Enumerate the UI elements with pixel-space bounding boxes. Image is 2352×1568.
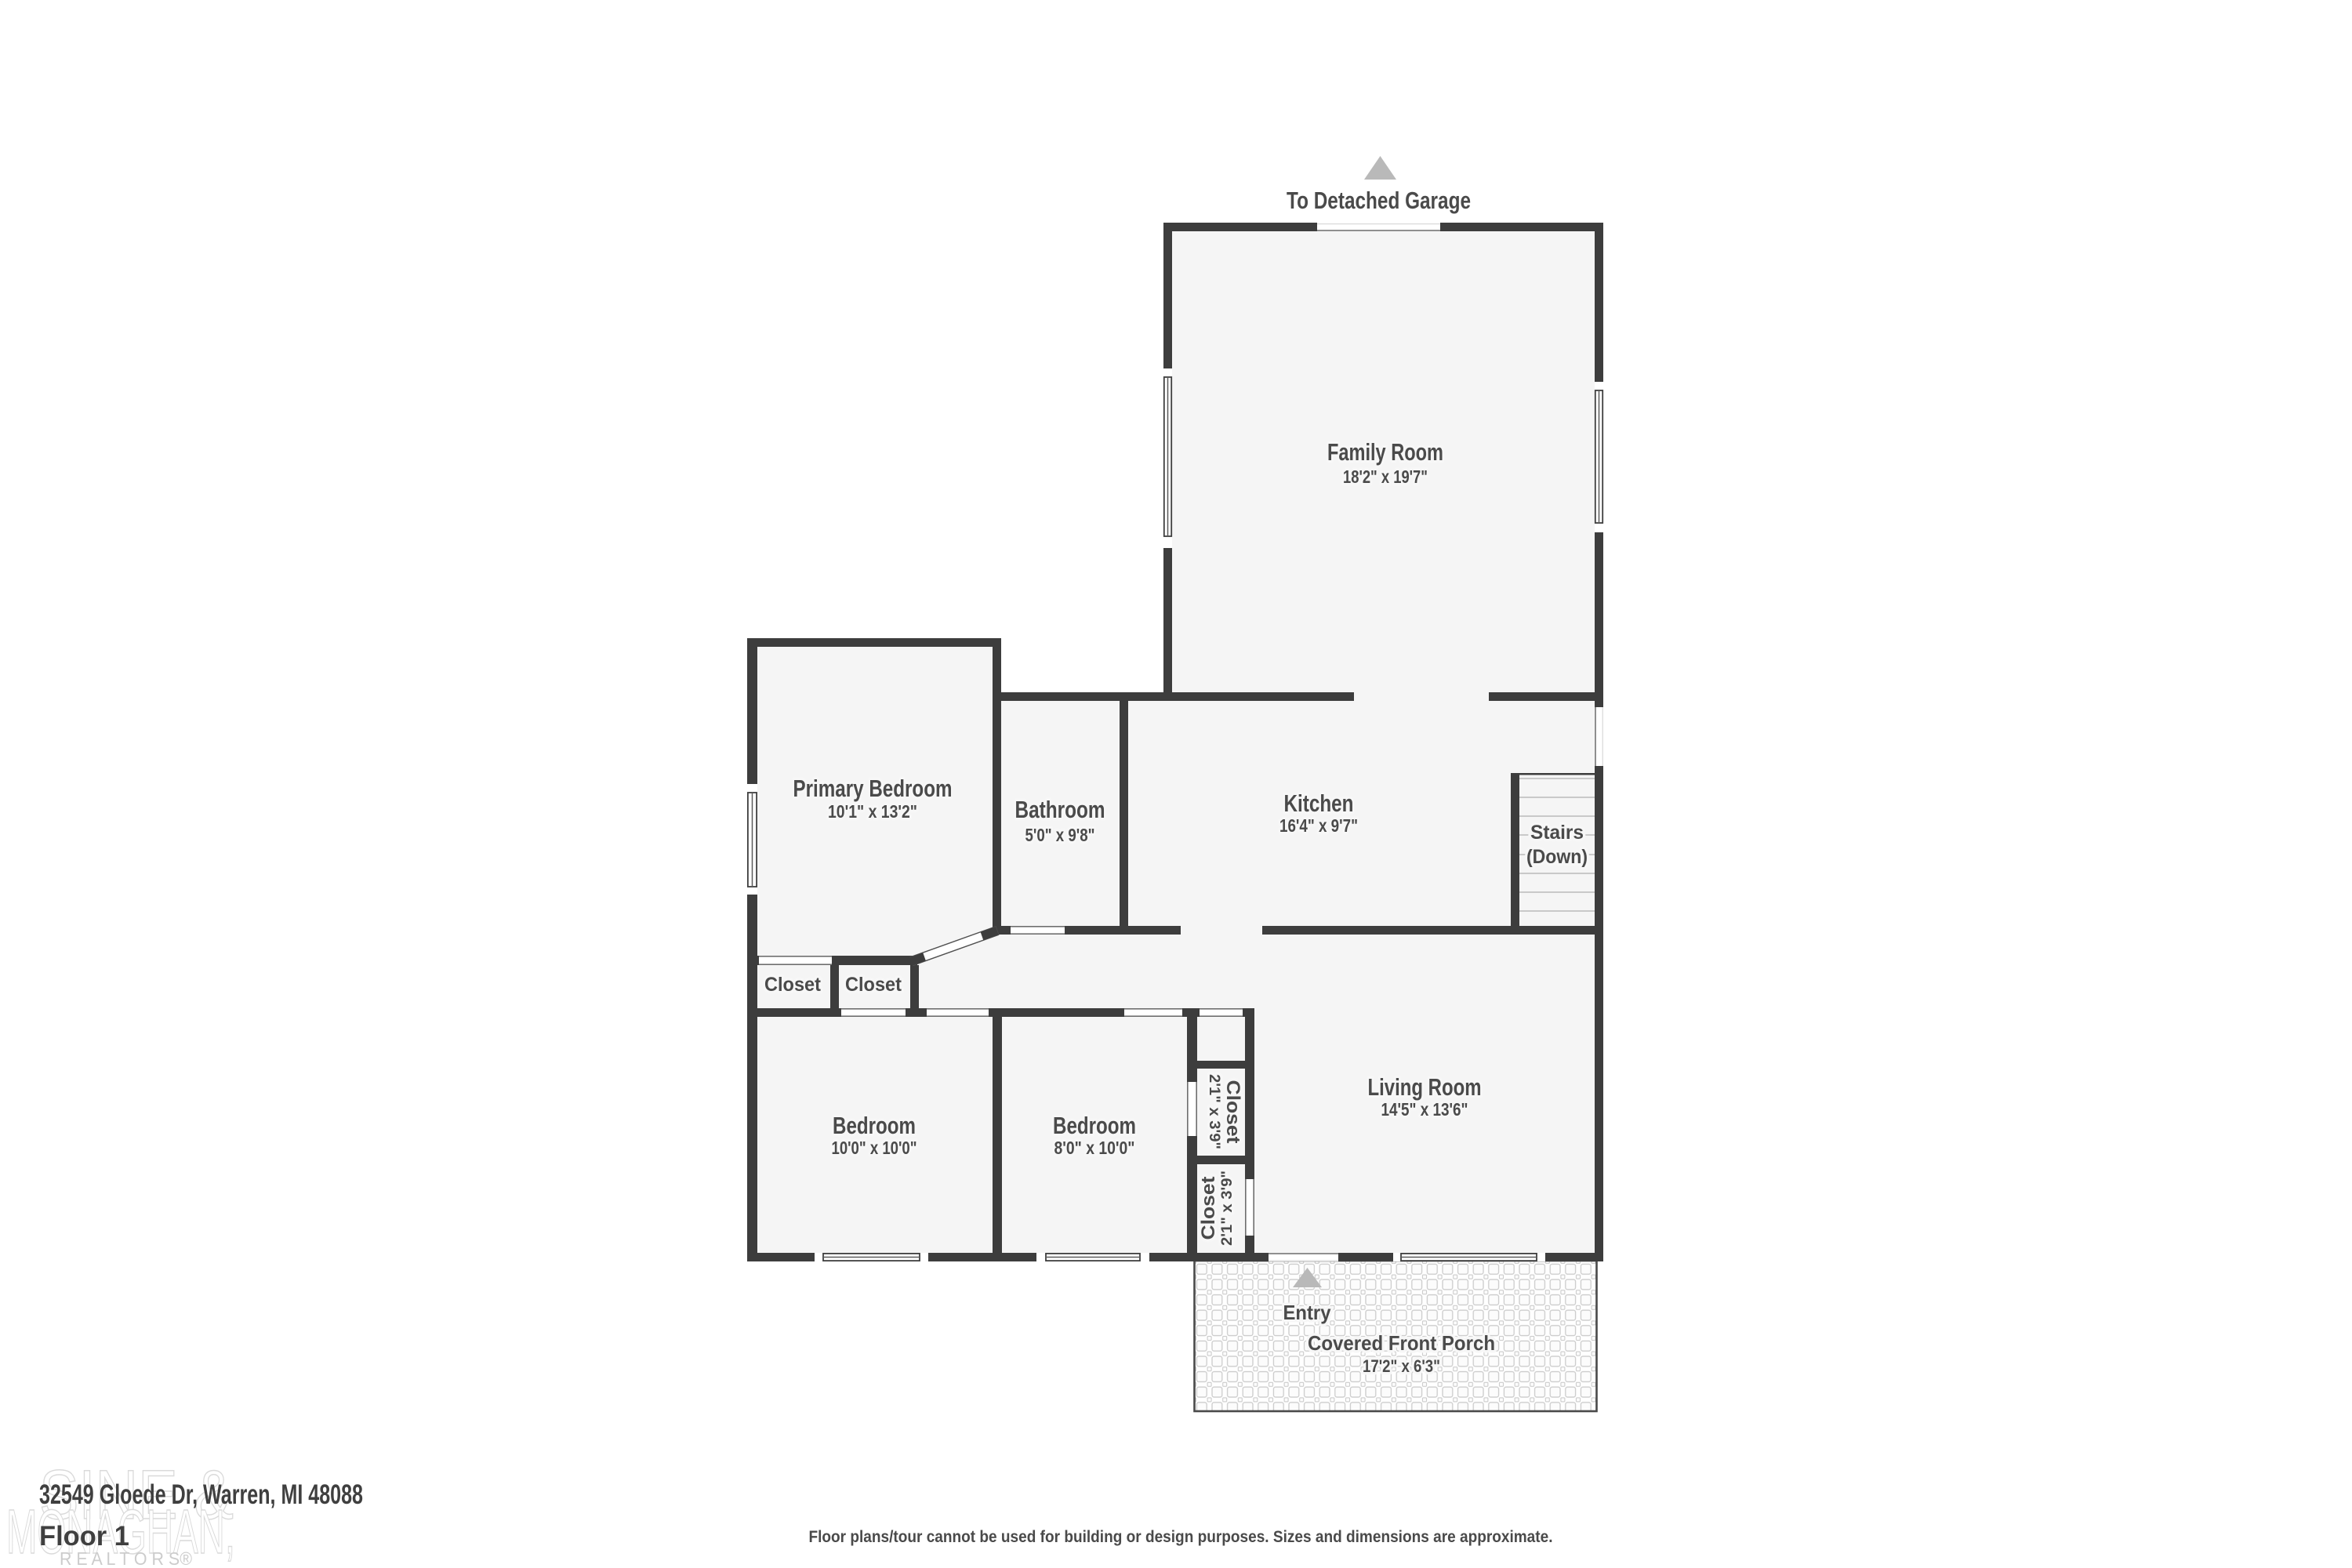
svg-text:Closet: Closet bbox=[764, 974, 822, 996]
svg-text:Floor plans/tour cannot be use: Floor plans/tour cannot be used for buil… bbox=[809, 1528, 1553, 1546]
svg-text:32549 Gloede Dr, Warren, MI 48: 32549 Gloede Dr, Warren, MI 48088 bbox=[39, 1479, 363, 1510]
svg-text:Primary Bedroom: Primary Bedroom bbox=[793, 775, 953, 802]
svg-text:Closet: Closet bbox=[1198, 1177, 1219, 1240]
svg-text:Bathroom: Bathroom bbox=[1015, 796, 1105, 823]
svg-text:Closet: Closet bbox=[1222, 1080, 1243, 1144]
svg-text:Closet: Closet bbox=[845, 974, 902, 996]
svg-text:10'1" x 13'2": 10'1" x 13'2" bbox=[828, 801, 917, 822]
svg-text:8'0" x 10'0": 8'0" x 10'0" bbox=[1054, 1138, 1135, 1158]
svg-text:14'5" x 13'6": 14'5" x 13'6" bbox=[1381, 1099, 1468, 1120]
svg-text:16'4" x 9'7": 16'4" x 9'7" bbox=[1279, 815, 1358, 836]
svg-text:Kitchen: Kitchen bbox=[1284, 789, 1354, 817]
svg-text:2'1" x 3'9": 2'1" x 3'9" bbox=[1219, 1171, 1236, 1246]
svg-text:Living Room: Living Room bbox=[1368, 1073, 1482, 1101]
svg-text:Family Room: Family Room bbox=[1327, 438, 1443, 466]
svg-text:Bedroom: Bedroom bbox=[833, 1112, 916, 1139]
svg-text:5'0" x 9'8": 5'0" x 9'8" bbox=[1025, 825, 1095, 845]
svg-text:18'2" x 19'7": 18'2" x 19'7" bbox=[1343, 466, 1428, 487]
svg-text:To Detached Garage: To Detached Garage bbox=[1287, 187, 1471, 214]
svg-text:10'0" x 10'0": 10'0" x 10'0" bbox=[832, 1138, 917, 1158]
svg-text:Bedroom: Bedroom bbox=[1053, 1112, 1136, 1139]
svg-text:17'2" x 6'3": 17'2" x 6'3" bbox=[1363, 1356, 1440, 1376]
svg-text:Floor 1: Floor 1 bbox=[39, 1521, 129, 1552]
svg-text:Stairs: Stairs bbox=[1530, 822, 1584, 844]
svg-text:Covered Front Porch: Covered Front Porch bbox=[1308, 1331, 1495, 1355]
svg-text:2'1" x 3'9": 2'1" x 3'9" bbox=[1206, 1074, 1222, 1149]
svg-text:Entry: Entry bbox=[1283, 1301, 1331, 1324]
svg-text:(Down): (Down) bbox=[1526, 846, 1588, 868]
